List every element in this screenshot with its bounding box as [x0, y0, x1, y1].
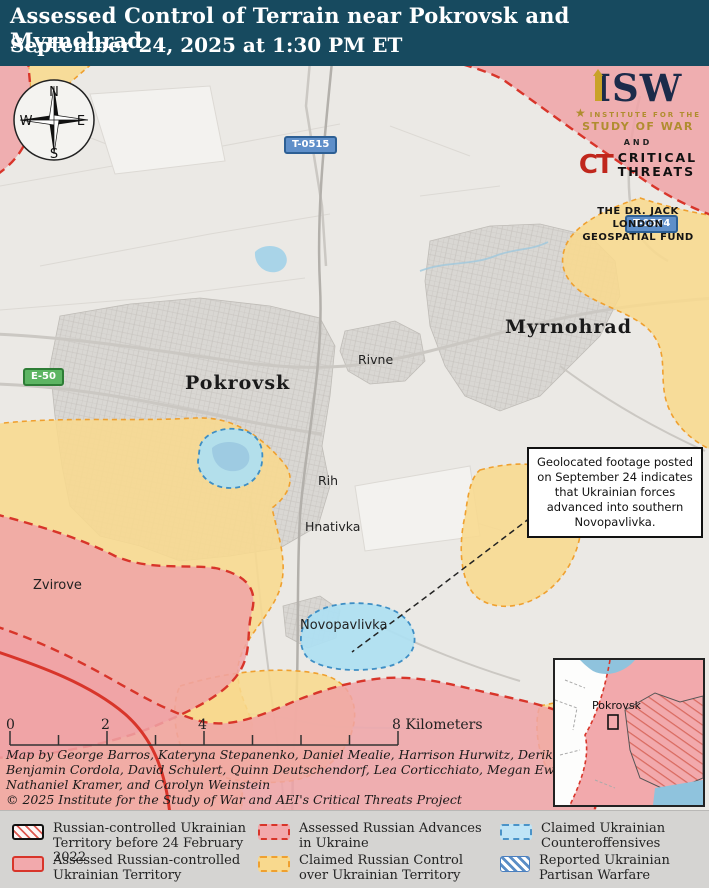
- ct-logo-text: CRITICAL THREATS: [618, 151, 697, 179]
- map-credits: Map by George Barros, Kateryna Stepanenk…: [6, 747, 605, 807]
- road-shield-t0515: T-0515: [284, 136, 337, 154]
- legend-swatch-counteroffensive: [500, 824, 532, 840]
- isw-torch-icon: [595, 75, 602, 101]
- legend-swatch-prewar: [12, 824, 44, 840]
- credits-line: Benjamin Cordola, David Schulert, Quinn …: [6, 762, 605, 777]
- ct-logo-icon: CT: [579, 153, 612, 177]
- town-label-rih: Rih: [318, 473, 338, 488]
- isw-logo: ISW: [572, 70, 704, 106]
- town-label-hnativka: Hnativka: [305, 519, 360, 534]
- and-divider: AND: [572, 138, 704, 147]
- legend-swatch-assessed-control: [12, 856, 44, 872]
- compass-n: N: [49, 85, 59, 100]
- compass-w: W: [20, 114, 33, 129]
- isw-institute-text: ★INSTITUTE FOR THE STUDY OF WAR: [572, 106, 704, 133]
- legend-swatch-partisan: [500, 856, 530, 872]
- geospatial-fund-text: THE DR. JACK LONDON GEOSPATIAL FUND: [572, 205, 704, 244]
- critical-threats-logo: CT CRITICAL THREATS: [572, 151, 704, 179]
- town-label-novopavlivka: Novopavlivka: [300, 618, 387, 633]
- scale-label-0: 0: [6, 717, 15, 733]
- compass-e: E: [77, 114, 85, 129]
- legend-swatch-claimed-control: [258, 856, 290, 872]
- legend-item-claimed-control: Claimed Russian Control over Ukrainian T…: [258, 854, 483, 883]
- scale-label-8km: 8 Kilometers: [392, 717, 483, 733]
- legend-swatch-assessed-advance: [258, 824, 290, 840]
- inset-locator-map: [553, 658, 705, 807]
- road-shield-e50: E-50: [23, 368, 64, 386]
- scale-label-2: 2: [101, 717, 110, 733]
- map-title-bar: Assessed Control of Terrain near Pokrovs…: [0, 0, 709, 66]
- page-subtitle: September 24, 2025 at 1:30 PM ET: [10, 33, 402, 57]
- town-label-rivne: Rivne: [358, 352, 393, 367]
- legend-item-assessed-control: Assessed Russian-controlled Ukrainian Te…: [12, 854, 247, 883]
- inset-pokrovsk-label: Pokrovsk: [592, 699, 641, 712]
- legend-item-partisan: Reported Ukrainian Partisan Warfare: [500, 854, 700, 883]
- geolocated-footage-callout: Geolocated footage posted on September 2…: [527, 447, 703, 538]
- map-legend: Russian-controlled Ukrainian Territory b…: [0, 810, 709, 888]
- scale-label-4: 4: [198, 717, 207, 733]
- star-icon: ★: [575, 106, 588, 120]
- credits-line: Map by George Barros, Kateryna Stepanenk…: [6, 747, 605, 762]
- isw-ct-logo-block: ISW ★INSTITUTE FOR THE STUDY OF WAR AND …: [572, 70, 704, 244]
- town-label-zvirove: Zvirove: [33, 578, 82, 593]
- legend-item-assessed-advance: Assessed Russian Advances in Ukraine: [258, 822, 483, 851]
- legend-item-counteroffensive: Claimed Ukrainian Counteroffensives: [500, 822, 700, 851]
- city-label-pokrovsk: Pokrovsk: [185, 372, 290, 394]
- credits-line: Nathaniel Kramer, and Carolyn Weinstein: [6, 777, 605, 792]
- compass-rose: N E S W: [8, 74, 100, 166]
- copyright-line: © 2025 Institute for the Study of War an…: [6, 792, 605, 807]
- compass-s: S: [50, 147, 58, 162]
- city-label-myrnohrad: Myrnohrad: [505, 316, 632, 338]
